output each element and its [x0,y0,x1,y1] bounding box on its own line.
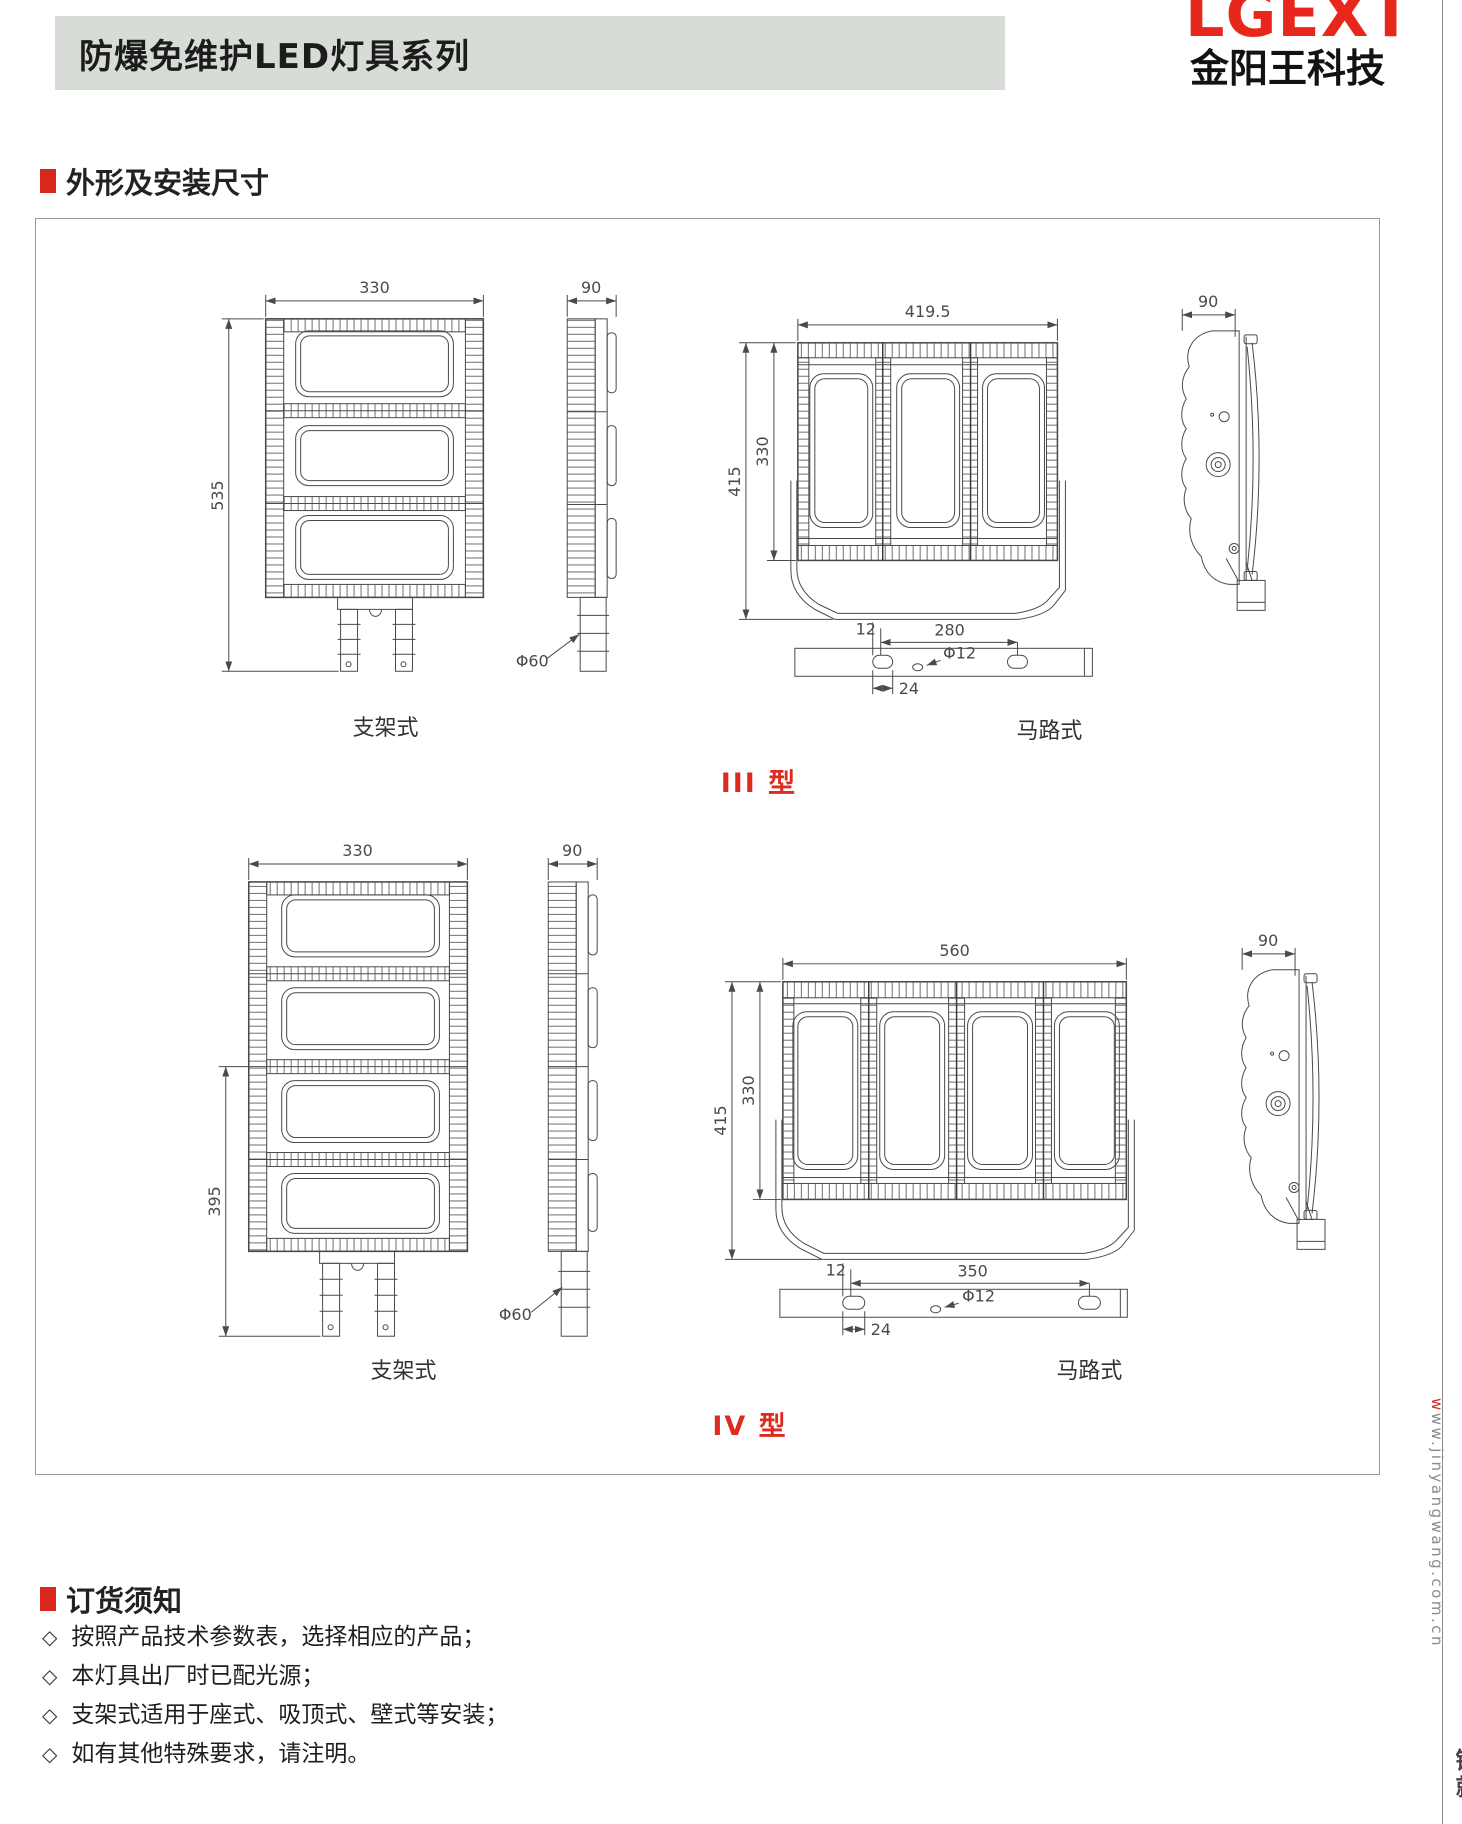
logo-company-name: 金阳王科技 [1185,50,1390,89]
type3-plate-slot-dim: 24 [899,679,919,698]
diamond-bullet-icon: ◇ [42,1661,57,1691]
logo-wordmark: LGEXT [1185,0,1390,46]
website-watermark: www.jinyangwang.com.cn [1428,1398,1446,1648]
type3-plate-edge-dim: 12 [856,619,876,638]
type4-plate-edge-dim: 12 [826,1260,846,1279]
type3-road-mounting-plate-view: 12 280 Φ12 24 [795,619,1093,698]
ordering-note-text: 按照产品技术参数表，选择相应的产品； [71,1622,485,1652]
type3-road-side-view: 90 [1182,292,1265,611]
ordering-note-text: 支架式适用于座式、吸顶式、壁式等安装； [71,1700,508,1730]
type3-side-width-dim: 90 [581,278,601,297]
type4-label: IV 型 [712,1411,787,1442]
type3-front-height-dim: 535 [208,480,227,510]
type4-road-outer-height-dim: 415 [711,1105,730,1135]
type3-bracket-caption: 支架式 [353,716,419,741]
list-item: ◇ 按照产品技术参数表，选择相应的产品； [42,1622,508,1652]
type4-plate-hole-dia-dim: Φ12 [962,1286,995,1305]
type4-bracket-side-view: 90 Φ60 [499,841,597,1336]
section-dimensions-title: 外形及安装尺寸 [66,160,269,202]
type4-road-width-dim: 560 [939,941,969,960]
type3-plate-hole-dia-dim: Φ12 [943,643,976,662]
type3-front-width-dim: 330 [359,278,389,297]
type4-road-side-width-dim: 90 [1258,931,1278,950]
ordering-note-text: 如有其他特殊要求，请注明。 [71,1739,370,1769]
watermark-red-part: w [1428,1398,1446,1413]
type3-bracket-front-view: 330 535 [208,278,484,671]
type3-label: III 型 [721,768,797,799]
page: 防爆免维护LED灯具系列 LGEXT 金阳王科技 外形及安装尺寸 [0,0,1462,1824]
type4-plate-slot-dim: 24 [871,1320,891,1339]
type3-pole-diameter-dim: Φ60 [516,651,549,670]
type3-road-caption: 马路式 [1017,719,1083,744]
type3-road-outer-height-dim: 415 [725,466,744,496]
dimension-drawings-panel: 330 535 90 Φ60 [35,218,1380,1475]
technical-drawings: 330 535 90 Φ60 [36,219,1379,1474]
type4-road-inner-height-dim: 330 [739,1075,758,1105]
section-ordering-title: 订货须知 [66,1578,182,1620]
diamond-bullet-icon: ◇ [42,1700,57,1730]
section-ordering-header: 订货须知 [40,1578,182,1620]
type4-road-caption: 马路式 [1056,1359,1122,1384]
list-item: ◇ 如有其他特殊要求，请注明。 [42,1739,508,1769]
type4-front-height-dim: 395 [205,1186,224,1216]
type4-plate-span-dim: 350 [957,1261,987,1280]
type3-road-side-width-dim: 90 [1198,292,1218,311]
diamond-bullet-icon: ◇ [42,1739,57,1769]
type4-bracket-front-view: 330 395 [205,841,468,1336]
type3-road-inner-height-dim: 330 [753,436,772,466]
ordering-note-text: 本灯具出厂时已配光源； [71,1661,324,1691]
type4-road-mounting-plate-view: 12 350 Φ12 24 [780,1260,1127,1339]
watermark-url: ww.jinyangwang.com.cn [1428,1413,1446,1648]
red-square-bullet [40,169,56,193]
watermark-tail-text: 铸就 [1447,1748,1462,1802]
page-title: 防爆免维护LED灯具系列 [55,29,470,78]
ordering-notes-list: ◇ 按照产品技术参数表，选择相应的产品； ◇ 本灯具出厂时已配光源； ◇ 支架式… [42,1622,508,1778]
type4-road-side-view: 90 [1242,931,1325,1250]
type4-front-width-dim: 330 [342,841,372,860]
type4-road-front-view: 560 415 330 [711,941,1134,1260]
type3-plate-span-dim: 280 [934,620,964,639]
type3-road-width-dim: 419.5 [905,302,951,321]
type4-side-width-dim: 90 [562,841,582,860]
type4-bracket-caption: 支架式 [371,1359,437,1384]
red-square-bullet [40,1587,56,1611]
title-bar: 防爆免维护LED灯具系列 [55,16,1005,90]
type4-pole-diameter-dim: Φ60 [499,1305,532,1324]
list-item: ◇ 本灯具出厂时已配光源； [42,1661,508,1691]
section-dimensions-header: 外形及安装尺寸 [40,160,269,202]
company-logo: LGEXT 金阳王科技 [1185,0,1390,89]
type3-bracket-side-view: 90 Φ60 [516,278,616,671]
type3-road-front-view: 419.5 415 330 [725,302,1065,620]
list-item: ◇ 支架式适用于座式、吸顶式、壁式等安装； [42,1700,508,1730]
diamond-bullet-icon: ◇ [42,1622,57,1652]
